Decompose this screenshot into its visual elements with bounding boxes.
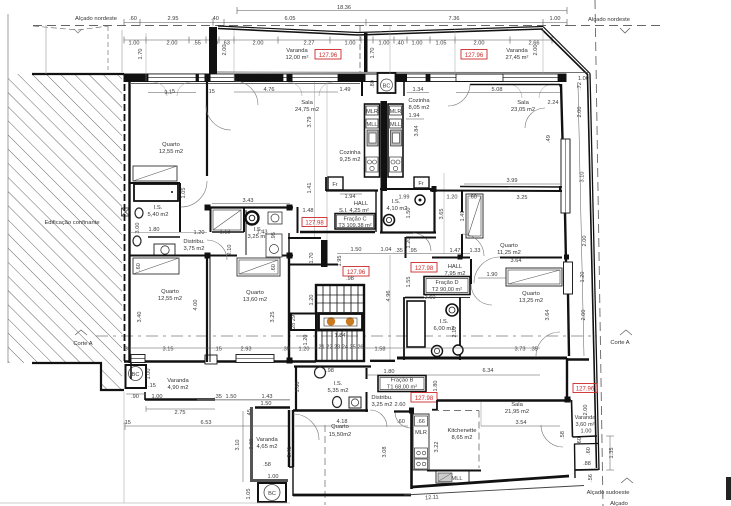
svg-text:3.10: 3.10 <box>235 440 241 451</box>
svg-text:HALL: HALL <box>354 201 369 207</box>
svg-text:12.11: 12.11 <box>425 495 439 502</box>
svg-text:T2 90,00 m²: T2 90,00 m² <box>432 287 462 293</box>
svg-text:2.00: 2.00 <box>222 45 228 56</box>
svg-text:1.00: 1.00 <box>550 16 561 22</box>
svg-text:.95: .95 <box>409 248 417 254</box>
svg-text:2.00: 2.00 <box>474 41 485 47</box>
svg-text:.60: .60 <box>586 447 592 455</box>
svg-text:1.20: 1.20 <box>447 195 458 201</box>
svg-text:.40: .40 <box>211 16 219 22</box>
svg-text:2.00: 2.00 <box>167 41 178 47</box>
svg-text:Distribu.: Distribu. <box>371 395 393 401</box>
svg-text:3.15: 3.15 <box>163 347 174 353</box>
svg-text:4.96: 4.96 <box>386 291 392 302</box>
svg-text:Alçado: Alçado <box>610 501 628 506</box>
svg-text:BC: BC <box>132 372 140 378</box>
svg-text:1.47: 1.47 <box>450 248 461 254</box>
svg-text:Varanda: Varanda <box>286 48 308 54</box>
svg-text:1.20: 1.20 <box>299 347 310 353</box>
svg-text:1.00: 1.00 <box>578 76 589 82</box>
svg-text:7.36: 7.36 <box>449 16 460 22</box>
svg-text:1.50: 1.50 <box>261 401 272 407</box>
svg-text:12,55 m2: 12,55 m2 <box>159 149 183 155</box>
svg-text:6.53: 6.53 <box>201 420 212 426</box>
svg-text:1.20: 1.20 <box>194 230 205 236</box>
svg-text:5,40 m2: 5,40 m2 <box>148 212 169 218</box>
svg-text:2.00: 2.00 <box>581 310 587 321</box>
svg-text:.98: .98 <box>346 276 354 282</box>
svg-text:1.94: 1.94 <box>409 113 420 119</box>
svg-text:6.34: 6.34 <box>483 368 494 374</box>
svg-text:1.43: 1.43 <box>257 230 268 236</box>
svg-text:Distribu.: Distribu. <box>183 239 205 245</box>
svg-text:MLL: MLL <box>390 122 401 128</box>
svg-text:.58: .58 <box>560 431 566 439</box>
svg-text:4.76: 4.76 <box>264 87 275 93</box>
svg-text:HALL: HALL <box>448 264 463 270</box>
svg-text:13,25 m2: 13,25 m2 <box>519 298 543 304</box>
svg-text:1.43: 1.43 <box>262 394 273 400</box>
svg-text:21,95 m2: 21,95 m2 <box>505 409 529 415</box>
svg-text:2.00: 2.00 <box>582 236 588 247</box>
svg-text:.60: .60 <box>577 437 583 445</box>
svg-text:4.00: 4.00 <box>193 300 199 311</box>
svg-text:1.00: 1.00 <box>146 369 152 380</box>
svg-text:Kitchenette: Kitchenette <box>447 428 476 434</box>
svg-text:127.96: 127.96 <box>576 387 595 393</box>
svg-text:3.65: 3.65 <box>439 209 445 220</box>
svg-text:8,65 m2: 8,65 m2 <box>452 435 473 441</box>
svg-text:3.22: 3.22 <box>434 442 440 453</box>
svg-text:5.08: 5.08 <box>492 87 503 93</box>
svg-text:6.05: 6.05 <box>285 16 296 22</box>
svg-text:2.00: 2.00 <box>583 405 589 416</box>
svg-text:127.96: 127.96 <box>319 53 338 59</box>
svg-text:Alçado nordeste: Alçado nordeste <box>588 17 630 23</box>
svg-text:Quarto: Quarto <box>500 243 518 249</box>
svg-text:.15: .15 <box>207 89 215 95</box>
svg-text:1.00: 1.00 <box>152 394 163 400</box>
svg-text:4,10 m2: 4,10 m2 <box>387 206 408 212</box>
svg-text:Corte A: Corte A <box>73 341 92 347</box>
svg-text:1.58: 1.58 <box>375 347 386 353</box>
svg-text:.60: .60 <box>136 263 142 271</box>
svg-text:24,75 m2: 24,75 m2 <box>295 107 319 113</box>
svg-text:2.93: 2.93 <box>241 347 252 353</box>
svg-text:Quarto: Quarto <box>522 291 540 297</box>
svg-text:.60: .60 <box>469 195 477 201</box>
svg-text:1.05: 1.05 <box>181 188 187 199</box>
svg-text:MLR: MLR <box>390 109 402 115</box>
svg-text:1.70: 1.70 <box>138 49 144 60</box>
svg-text:1.00: 1.00 <box>581 429 592 435</box>
svg-text:I.S.: I.S. <box>440 319 449 325</box>
svg-text:1.84: 1.84 <box>335 333 346 339</box>
svg-text:3.99: 3.99 <box>507 178 518 184</box>
svg-text:21 22 23 24 25 26: 21 22 23 24 25 26 <box>318 345 363 351</box>
svg-text:Corte A: Corte A <box>610 340 629 346</box>
svg-text:12,00 m²: 12,00 m² <box>286 55 309 61</box>
svg-text:11,25 m2: 11,25 m2 <box>497 250 521 256</box>
svg-text:.60: .60 <box>271 264 277 272</box>
svg-text:1.90: 1.90 <box>487 272 498 278</box>
svg-text:Alçado sudoeste: Alçado sudoeste <box>587 490 630 496</box>
svg-text:T1 68,00 m²: T1 68,00 m² <box>387 385 417 391</box>
svg-text:.15: .15 <box>214 347 222 353</box>
svg-text:.35: .35 <box>214 394 222 400</box>
svg-text:1.00: 1.00 <box>412 41 423 47</box>
svg-text:18.36: 18.36 <box>337 5 351 11</box>
svg-text:.35: .35 <box>123 347 131 353</box>
svg-text:Fr: Fr <box>418 181 423 187</box>
svg-text:1.80: 1.80 <box>433 381 439 392</box>
svg-text:3,25 m2: 3,25 m2 <box>372 402 393 408</box>
svg-text:28 29: 28 29 <box>291 315 297 329</box>
svg-text:9,25 m2: 9,25 m2 <box>340 157 361 163</box>
svg-text:3.08: 3.08 <box>382 447 388 458</box>
svg-text:1.04: 1.04 <box>381 247 392 253</box>
svg-text:Alçado nordeste: Alçado nordeste <box>75 16 117 22</box>
svg-text:MLL: MLL <box>452 476 463 482</box>
svg-text:1.49: 1.49 <box>460 211 466 222</box>
svg-text:1.49: 1.49 <box>340 87 351 93</box>
svg-text:1.50: 1.50 <box>226 394 237 400</box>
svg-text:1.20: 1.20 <box>309 295 315 306</box>
svg-text:3.40: 3.40 <box>137 312 143 323</box>
svg-text:5,35 m2: 5,35 m2 <box>328 388 349 394</box>
svg-text:2.00: 2.00 <box>533 45 539 56</box>
svg-text:1.20: 1.20 <box>406 238 412 249</box>
svg-text:2.24: 2.24 <box>548 100 559 106</box>
svg-text:1.94: 1.94 <box>345 194 356 200</box>
svg-text:Cozinha: Cozinha <box>408 98 430 104</box>
svg-text:2.00: 2.00 <box>249 439 255 450</box>
svg-text:.45: .45 <box>247 409 253 417</box>
svg-text:1.00: 1.00 <box>129 41 140 47</box>
svg-text:I.S.: I.S. <box>154 205 163 211</box>
svg-text:1.55: 1.55 <box>406 277 412 288</box>
svg-text:.15: .15 <box>148 383 156 389</box>
svg-text:.58: .58 <box>263 462 271 468</box>
svg-text:4,90 m2: 4,90 m2 <box>168 385 189 391</box>
svg-text:3.54: 3.54 <box>516 420 527 426</box>
svg-text:BC: BC <box>383 84 391 90</box>
svg-text:13,60 m2: 13,60 m2 <box>243 297 267 303</box>
svg-text:.60: .60 <box>129 16 137 22</box>
svg-text:127.98: 127.98 <box>415 266 434 272</box>
svg-text:1.00: 1.00 <box>268 474 279 480</box>
svg-text:1.80: 1.80 <box>384 369 395 375</box>
svg-text:1.50: 1.50 <box>406 208 412 219</box>
svg-text:1.35: 1.35 <box>609 448 615 459</box>
svg-text:2.10: 2.10 <box>452 327 458 338</box>
svg-text:T3 109,38 m²: T3 109,38 m² <box>338 223 371 229</box>
svg-text:.35: .35 <box>282 347 290 353</box>
svg-text:.35: .35 <box>530 347 538 353</box>
svg-text:2.10: 2.10 <box>227 245 233 256</box>
svg-text:.55: .55 <box>193 41 201 47</box>
svg-text:Edificação confinante: Edificação confinante <box>44 220 99 226</box>
svg-text:Fr: Fr <box>332 182 337 188</box>
svg-text:1.05: 1.05 <box>436 41 447 47</box>
svg-text:2.60: 2.60 <box>395 402 406 408</box>
svg-text:.15: .15 <box>123 420 131 426</box>
svg-text:.80: .80 <box>370 80 376 88</box>
svg-text:2.00: 2.00 <box>577 107 583 118</box>
svg-text:Quarto: Quarto <box>161 289 179 295</box>
svg-text:I.S.: I.S. <box>334 381 343 387</box>
svg-text:.95: .95 <box>271 232 277 240</box>
svg-text:2.75: 2.75 <box>175 410 186 416</box>
svg-text:Sala: Sala <box>511 402 523 408</box>
svg-text:MLR: MLR <box>366 109 378 115</box>
svg-text:4,65 m2: 4,65 m2 <box>257 444 278 450</box>
svg-text:.56: .56 <box>588 474 594 482</box>
svg-text:3.41: 3.41 <box>287 447 293 458</box>
svg-text:.98: .98 <box>326 368 334 374</box>
svg-text:3.84: 3.84 <box>414 126 420 137</box>
svg-text:1.13: 1.13 <box>220 230 231 236</box>
svg-text:MLL: MLL <box>367 122 378 128</box>
svg-text:1.33: 1.33 <box>470 248 481 254</box>
svg-text:3.43: 3.43 <box>243 198 254 204</box>
svg-text:8,05 m2: 8,05 m2 <box>409 105 430 111</box>
svg-text:3.64: 3.64 <box>545 310 551 321</box>
svg-text:MLR: MLR <box>415 430 427 436</box>
svg-text:.40: .40 <box>396 41 404 47</box>
svg-text:.88: .88 <box>583 461 591 467</box>
svg-text:Cozinha: Cozinha <box>339 150 361 156</box>
svg-text:1.00: 1.00 <box>379 41 390 47</box>
svg-text:Sala: Sala <box>517 100 529 106</box>
svg-text:4.18: 4.18 <box>337 419 348 425</box>
svg-text:1.99: 1.99 <box>399 195 410 201</box>
svg-text:2.27: 2.27 <box>304 41 315 47</box>
svg-text:3.79: 3.79 <box>307 117 313 128</box>
svg-text:3.10: 3.10 <box>580 172 586 183</box>
svg-text:3.25: 3.25 <box>270 312 276 323</box>
svg-text:2.95: 2.95 <box>168 16 179 22</box>
svg-text:127.98: 127.98 <box>415 396 434 402</box>
svg-text:1.80: 1.80 <box>149 227 160 233</box>
svg-text:1.50: 1.50 <box>351 247 362 253</box>
svg-text:Fração C: Fração C <box>343 217 366 223</box>
svg-text:1.20: 1.20 <box>303 335 309 346</box>
svg-text:1.41: 1.41 <box>307 183 313 194</box>
svg-text:Varanda: Varanda <box>506 48 528 54</box>
svg-text:3.73: 3.73 <box>515 347 526 353</box>
svg-text:1.05: 1.05 <box>246 489 252 500</box>
svg-text:3.25: 3.25 <box>517 195 528 201</box>
svg-text:.66: .66 <box>417 419 425 425</box>
svg-text:12,55 m2: 12,55 m2 <box>158 296 182 302</box>
svg-text:3,60 m²: 3,60 m² <box>576 422 595 428</box>
svg-text:Sala: Sala <box>301 100 313 106</box>
svg-text:BC: BC <box>268 491 276 497</box>
svg-text:1.60: 1.60 <box>295 382 301 393</box>
svg-text:1.70: 1.70 <box>370 48 376 59</box>
svg-text:1.48: 1.48 <box>303 208 314 214</box>
svg-text:.49: .49 <box>546 135 552 143</box>
svg-text:23,05 m2: 23,05 m2 <box>511 107 535 113</box>
svg-text:1.95: 1.95 <box>337 256 343 267</box>
svg-text:Fração B: Fração B <box>391 378 414 384</box>
svg-text:2.00: 2.00 <box>253 41 264 47</box>
svg-text:3,75 m2: 3,75 m2 <box>184 246 205 252</box>
svg-text:127.96: 127.96 <box>465 53 484 59</box>
svg-text:3.64: 3.64 <box>511 258 522 264</box>
svg-text:.60: .60 <box>397 419 405 425</box>
svg-text:27,45 m²: 27,45 m² <box>506 55 529 61</box>
svg-text:3.00: 3.00 <box>135 223 141 234</box>
svg-text:Varanda: Varanda <box>167 378 189 384</box>
svg-text:1.20: 1.20 <box>580 272 586 283</box>
svg-text:.90: .90 <box>131 394 139 400</box>
svg-text:Quarto: Quarto <box>246 290 264 296</box>
svg-text:1.34: 1.34 <box>413 87 424 93</box>
svg-text:1.70: 1.70 <box>309 253 315 264</box>
svg-text:1.00: 1.00 <box>345 41 356 47</box>
svg-text:127.98: 127.98 <box>305 221 324 227</box>
svg-text:Fração D: Fração D <box>435 280 458 286</box>
svg-text:.35: .35 <box>395 248 403 254</box>
svg-text:Varanda: Varanda <box>256 437 278 443</box>
svg-text:Quarto: Quarto <box>162 142 180 148</box>
svg-text:15,50m2: 15,50m2 <box>329 432 352 438</box>
